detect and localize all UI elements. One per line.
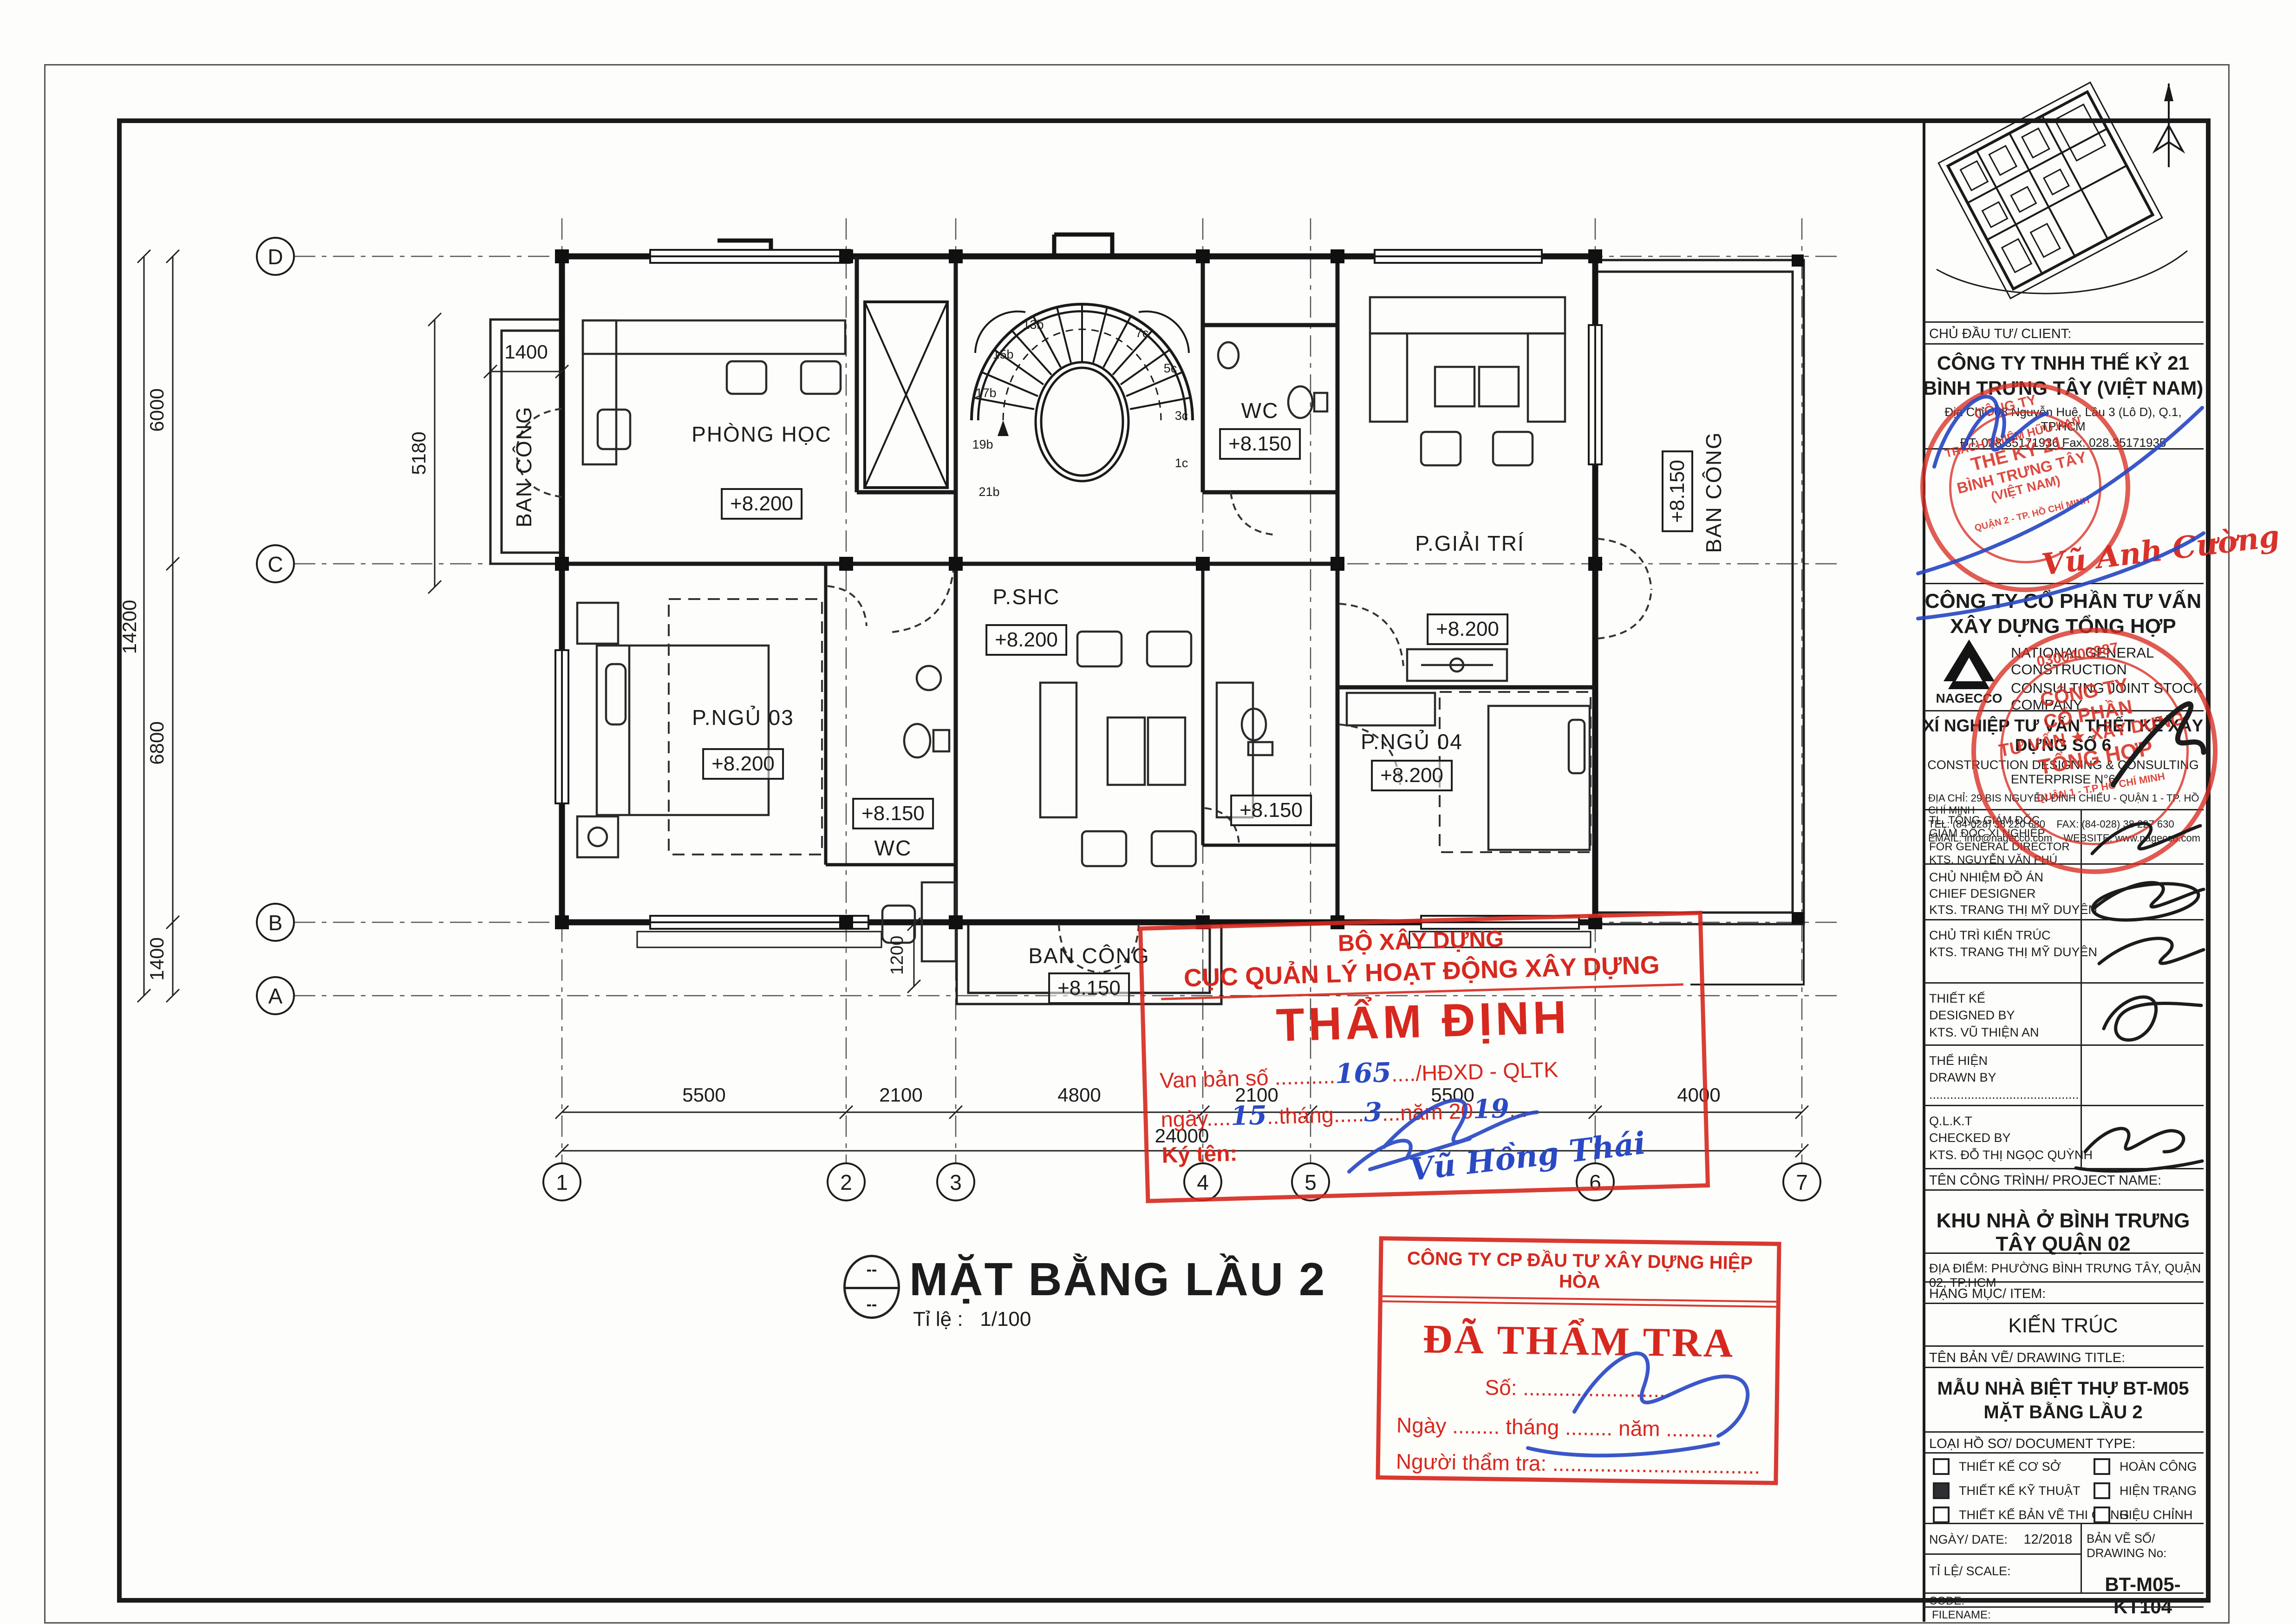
room-label-wc-ngu03: WC xyxy=(874,835,912,861)
drawing-title-1: MẪU NHÀ BIỆT THỰ BT-M05 xyxy=(1923,1378,2204,1399)
stamp1-date-day: 15 xyxy=(1230,1100,1267,1132)
client-label: CHỦ ĐẦU TƯ/ CLIENT: xyxy=(1923,323,2204,345)
date-value: 12/2018 xyxy=(2023,1532,2072,1547)
svg-text:1200: 1200 xyxy=(887,936,907,975)
checkbox-thiet-ke-ky-thuat xyxy=(1933,1482,1950,1499)
svg-text:2100: 2100 xyxy=(879,1084,922,1106)
svg-text:6000: 6000 xyxy=(146,388,168,431)
drawing-title-2: MẶT BẰNG LẦU 2 xyxy=(1923,1402,2204,1423)
svg-text:17b: 17b xyxy=(975,386,996,400)
filename-section: FILENAME: xyxy=(1923,1608,2204,1622)
svg-text:14200: 14200 xyxy=(118,600,140,654)
checkbox-thiet-ke-co-so xyxy=(1933,1458,1950,1475)
spiral-stair xyxy=(972,304,1193,481)
row6-l2: CHECKED BY xyxy=(1929,1129,2204,1146)
date-section: NGÀY/ DATE: 12/2018 xyxy=(1923,1524,2081,1555)
figure-number-top: -- xyxy=(867,1261,877,1279)
check-label-hien-trang: HIỆN TRẠNG xyxy=(2120,1484,2197,1498)
drawing-title-label: TÊN BẢN VẼ/ DRAWING TITLE: xyxy=(1923,1347,2204,1368)
svg-text:1400: 1400 xyxy=(146,937,168,980)
code-label: CODE: xyxy=(1929,1595,2204,1608)
check-label-ky-thuat: THIẾT KẾ KỸ THUẬT xyxy=(1959,1484,2081,1498)
check-hien-trang: HIỆN TRẠNG xyxy=(2094,1482,2197,1499)
svg-text:5c: 5c xyxy=(1164,361,1177,375)
stamp1-doc-pre: Van bản số .......... xyxy=(1159,1063,1335,1093)
checkbox-hoan-cong xyxy=(2094,1458,2110,1475)
svg-text:15b: 15b xyxy=(992,347,1013,361)
stamp2-company: CÔNG TY CP ĐẦU TƯ XÂY DỰNG HIỆP HÒA xyxy=(1383,1240,1777,1303)
row3-l3: KTS. TRANG THỊ MỸ DUYÊN xyxy=(1929,944,2204,960)
checkbox-hieu-chinh xyxy=(2094,1507,2110,1523)
row5-l3: ........................................… xyxy=(1929,1086,2204,1103)
scale-label: TỈ LỆ/ SCALE: xyxy=(1929,1564,2081,1578)
stamp1-doc-no: 165 xyxy=(1335,1057,1392,1089)
scale-section: TỈ LỆ/ SCALE: xyxy=(1923,1555,2081,1594)
da-tham-tra-stamp: CÔNG TY CP ĐẦU TƯ XÂY DỰNG HIỆP HÒA ĐÃ T… xyxy=(1376,1236,1781,1485)
stamp1-date-post: ...năm 20 xyxy=(1382,1098,1473,1125)
tham-dinh-stamp: BỘ XÂY DỰNG CỤC QUẢN LÝ HOẠT ĐỘNG XÂY DỰ… xyxy=(1138,911,1710,1203)
svg-text:7: 7 xyxy=(1796,1170,1808,1194)
item-section: KIẾN TRÚC xyxy=(1923,1304,2204,1347)
check-label-hieu-chinh: HIỆU CHỈNH xyxy=(2120,1508,2193,1522)
svg-text:B: B xyxy=(268,911,283,935)
stamp2-so: Số: ......................... xyxy=(1381,1373,1775,1404)
room-label-wc-top: WC xyxy=(1241,398,1279,423)
svg-text:D: D xyxy=(267,245,283,269)
doc-type-label: LOẠI HỒ SƠ/ DOCUMENT TYPE: xyxy=(1923,1433,2204,1454)
site-location-map xyxy=(1927,51,2201,320)
stamp1-doc-post: ..../HĐXD - QLTK xyxy=(1391,1057,1559,1086)
drawing-no-label: BẢN VẼ SỐ/ DRAWING No: xyxy=(2087,1532,2204,1560)
checkbox-hien-trang xyxy=(2094,1482,2110,1499)
figure-number-symbol: -- -- xyxy=(843,1255,900,1319)
row5-l1: THỂ HIỆN xyxy=(1929,1052,2204,1069)
room-label-ngu03: P.NGỦ 03 xyxy=(692,705,794,730)
project-name-label: TÊN CÔNG TRÌNH/ PROJECT NAME: xyxy=(1923,1169,2204,1191)
check-hieu-chinh: HIỆU CHỈNH xyxy=(2094,1507,2193,1523)
svg-text:21b: 21b xyxy=(978,485,999,499)
stamp1-date-month: 3 xyxy=(1363,1097,1383,1128)
svg-text:A: A xyxy=(268,984,283,1008)
date-label: NGÀY/ DATE: xyxy=(1929,1533,2008,1547)
row5-l2: DRAWN BY xyxy=(1929,1069,2204,1086)
check-thiet-ke-co-so: THIẾT KẾ CƠ SỞ xyxy=(1933,1458,2061,1475)
level-balcony-right: +8.150 xyxy=(1662,450,1693,532)
room-label-phong-hoc: PHÒNG HỌC xyxy=(691,422,832,447)
svg-text:2: 2 xyxy=(840,1170,852,1194)
row-chief-architect: CHỦ TRÌ KIẾN TRÚC CHIEF ARCHITECT KTS. T… xyxy=(1923,920,2204,984)
svg-text:6800: 6800 xyxy=(146,721,168,764)
filename-label: FILENAME: xyxy=(1932,1609,2204,1622)
room-label-ngu04: P.NGỦ 04 xyxy=(1361,729,1463,754)
svg-text:5180: 5180 xyxy=(408,431,430,475)
stamp2-nguoi: Người thẩm tra: ........................… xyxy=(1396,1449,1774,1479)
svg-text:4800: 4800 xyxy=(1057,1084,1101,1106)
stamp1-doc-line: Van bản số ..........165..../HĐXD - QLTK xyxy=(1159,1048,1702,1095)
elevator-shaft xyxy=(865,302,947,488)
svg-text:1400: 1400 xyxy=(504,341,548,363)
row-chief-designer: CHỦ NHIỆM ĐỒ ÁN CHIEF DESIGNER KTS. TRAN… xyxy=(1923,865,2204,920)
svg-text:C: C xyxy=(267,552,283,576)
checkbox-thiet-ke-thi-cong xyxy=(1933,1507,1950,1523)
plan-scale: Tỉ lệ : 1/100 xyxy=(913,1308,1031,1331)
project-name: KHU NHÀ Ở BÌNH TRƯNG TÂY QUẬN 02 xyxy=(1923,1209,2204,1256)
room-label-giai-tri: P.GIẢI TRÍ xyxy=(1415,531,1525,556)
room-label-balcony-right: BAN CÔNG xyxy=(1701,431,1726,553)
figure-number-bottom: -- xyxy=(867,1296,877,1314)
level-wc-ngu04: +8.150 xyxy=(1230,795,1312,826)
level-ngu04: +8.200 xyxy=(1371,760,1453,791)
columns xyxy=(555,249,1804,929)
level-phong-hoc: +8.200 xyxy=(721,488,802,520)
level-wc-top: +8.150 xyxy=(1219,428,1301,460)
project-name-section: KHU NHÀ Ở BÌNH TRƯNG TÂY QUẬN 02 xyxy=(1923,1191,2204,1254)
row6-l3: KTS. ĐỖ THỊ NGỌC QUỲNH xyxy=(1929,1147,2204,1163)
row-checked-by: Q.L.K.T CHECKED BY KTS. ĐỖ THỊ NGỌC QUỲN… xyxy=(1923,1106,2204,1169)
drawing-title-section: MẪU NHÀ BIỆT THỰ BT-M05 MẶT BẰNG LẦU 2 xyxy=(1923,1368,2204,1433)
item-label: HẠNG MỤC/ ITEM: xyxy=(1923,1283,2204,1304)
north-arrow-icon xyxy=(2155,83,2183,167)
check-hoan-cong: HOÀN CÔNG xyxy=(2094,1458,2197,1475)
stamp2-ngay: Ngày ........ tháng ........ năm .......… xyxy=(1396,1413,1775,1443)
svg-text:1c: 1c xyxy=(1175,456,1188,470)
drawing-sheet: 5500 2100 4800 2100 5500 4000 24000 6000… xyxy=(0,0,2296,1624)
svg-text:7c: 7c xyxy=(1135,326,1149,340)
svg-text:13b: 13b xyxy=(1023,318,1044,332)
row2-l3: KTS. TRANG THỊ MỸ DUYÊN xyxy=(1929,902,2204,918)
level-shc: +8.200 xyxy=(985,624,1067,656)
balcony-railings xyxy=(490,260,1804,1004)
svg-text:19b: 19b xyxy=(972,437,993,451)
level-ngu03: +8.200 xyxy=(702,748,784,780)
stamp1-date-mid: ..tháng..... xyxy=(1266,1102,1364,1129)
plan-scale-label: Tỉ lệ : xyxy=(913,1308,963,1331)
location-section: ĐỊA ĐIỂM: PHƯỜNG BÌNH TRƯNG TÂY, QUẬN 02… xyxy=(1923,1254,2204,1283)
doors xyxy=(516,409,1651,972)
svg-text:3c: 3c xyxy=(1175,409,1188,423)
consultant-name-1: CÔNG TY CỔ PHẦN TƯ VẤN xyxy=(1923,590,2204,613)
svg-text:5500: 5500 xyxy=(682,1084,725,1106)
code-section: CODE: xyxy=(1923,1594,2204,1608)
stamp1-date-pre: ngày.... xyxy=(1161,1105,1231,1132)
svg-text:3: 3 xyxy=(950,1170,962,1194)
item-value: KIẾN TRÚC xyxy=(1923,1314,2204,1337)
row-drawn-by: THỂ HIỆN DRAWN BY ......................… xyxy=(1923,1046,2204,1106)
row3-l1: CHỦ TRÌ KIẾN TRÚC xyxy=(1929,927,2204,944)
row4-l1: THIẾT KẾ xyxy=(1929,990,2204,1007)
level-wc-ngu03: +8.150 xyxy=(852,798,934,829)
room-label-balcony-bottom: BAN CÔNG xyxy=(1028,943,1149,968)
row4-l2: DESIGNED BY xyxy=(1929,1007,2204,1024)
stamp1-date-year: 19 xyxy=(1473,1093,1510,1125)
plan-title: MẶT BẰNG LẦU 2 xyxy=(909,1253,1326,1306)
check-thiet-ke-ky-thuat: THIẾT KẾ KỸ THUẬT xyxy=(1933,1482,2081,1499)
room-label-shc: P.SHC xyxy=(993,584,1060,609)
check-label-co-so: THIẾT KẾ CƠ SỞ xyxy=(1959,1460,2061,1474)
level-giai-tri: +8.200 xyxy=(1427,613,1508,645)
room-label-balcony-left: BAN CÔNG xyxy=(511,406,536,527)
svg-text:1: 1 xyxy=(556,1170,568,1194)
row-designed-by: THIẾT KẾ DESIGNED BY KTS. VŨ THIỆN AN xyxy=(1923,984,2204,1046)
row4-l3: KTS. VŨ THIỆN AN xyxy=(1929,1024,2204,1041)
row2-l1: CHỦ NHIỆM ĐỒ ÁN xyxy=(1929,869,2204,886)
row2-l2: CHIEF DESIGNER xyxy=(1929,886,2204,902)
level-balcony-bottom: +8.150 xyxy=(1048,972,1130,1004)
stamp1-date-end: ... xyxy=(1509,1097,1528,1122)
row6-l1: Q.L.K.T xyxy=(1929,1113,2204,1129)
drawing-no-section: BẢN VẼ SỐ/ DRAWING No: BT-M05-KT104 xyxy=(2081,1524,2204,1594)
stamp2-title: ĐÃ THẨM TRA xyxy=(1382,1315,1776,1368)
check-label-hoan-cong: HOÀN CÔNG xyxy=(2120,1460,2197,1474)
plan-scale-value: 1/100 xyxy=(980,1308,1031,1331)
client-name-1: CÔNG TY TNHH THẾ KỶ 21 xyxy=(1923,352,2204,374)
